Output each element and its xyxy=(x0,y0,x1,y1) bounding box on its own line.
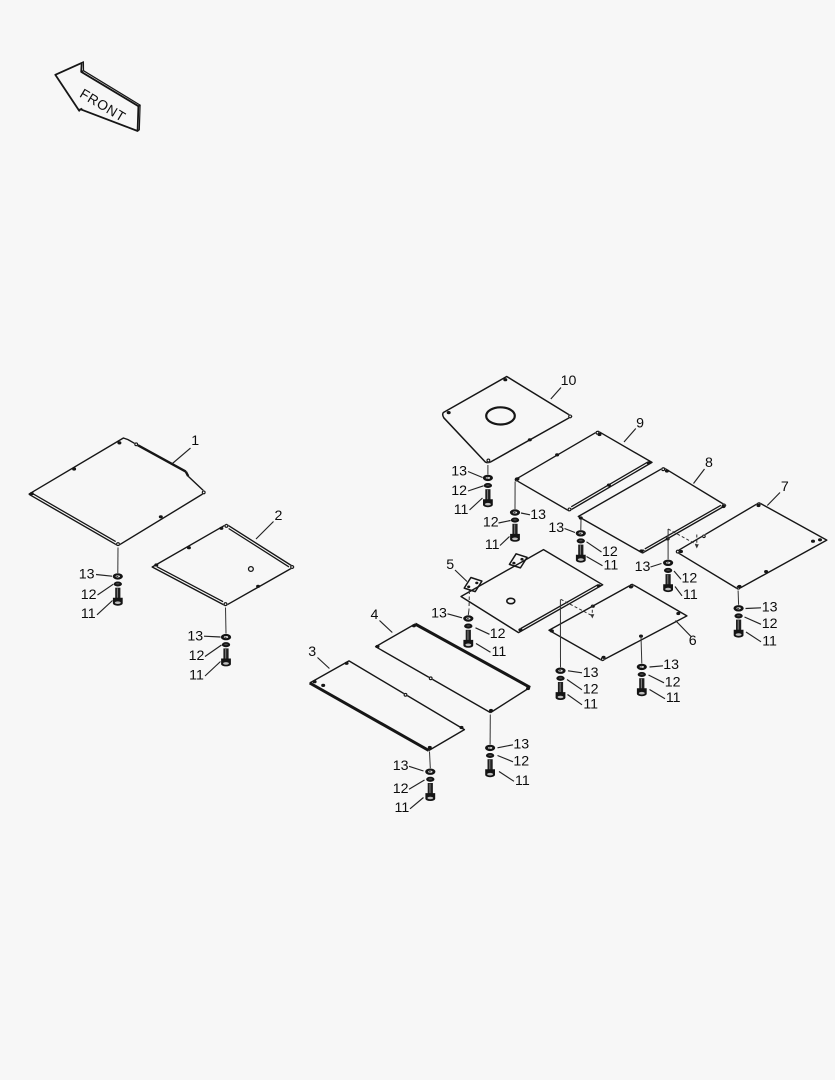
svg-text:11: 11 xyxy=(515,773,530,789)
svg-text:11: 11 xyxy=(189,667,204,683)
svg-text:13: 13 xyxy=(187,628,203,644)
svg-text:1: 1 xyxy=(191,433,199,449)
svg-text:12: 12 xyxy=(665,674,681,690)
svg-text:2: 2 xyxy=(274,508,282,524)
svg-text:3: 3 xyxy=(308,644,316,660)
svg-text:13: 13 xyxy=(635,559,651,575)
svg-text:13: 13 xyxy=(451,464,467,480)
svg-text:7: 7 xyxy=(781,479,789,495)
svg-text:13: 13 xyxy=(393,758,409,774)
svg-text:13: 13 xyxy=(583,665,599,681)
svg-text:9: 9 xyxy=(636,416,644,432)
svg-text:12: 12 xyxy=(189,648,205,664)
svg-text:12: 12 xyxy=(451,483,467,499)
svg-text:12: 12 xyxy=(81,587,97,603)
svg-text:13: 13 xyxy=(79,567,95,583)
svg-text:13: 13 xyxy=(663,657,679,673)
svg-text:11: 11 xyxy=(454,502,469,518)
svg-text:13: 13 xyxy=(762,599,778,615)
svg-text:10: 10 xyxy=(561,373,577,389)
svg-text:11: 11 xyxy=(485,537,500,553)
svg-text:13: 13 xyxy=(513,736,529,752)
svg-text:11: 11 xyxy=(683,587,698,603)
svg-text:11: 11 xyxy=(492,644,507,660)
svg-text:11: 11 xyxy=(762,633,777,649)
svg-text:4: 4 xyxy=(370,607,378,623)
svg-text:11: 11 xyxy=(81,606,96,622)
svg-text:12: 12 xyxy=(393,781,409,797)
svg-text:12: 12 xyxy=(483,515,499,531)
svg-text:11: 11 xyxy=(583,696,598,712)
svg-text:5: 5 xyxy=(446,557,454,573)
svg-text:11: 11 xyxy=(395,800,410,816)
svg-text:12: 12 xyxy=(762,616,778,632)
svg-text:12: 12 xyxy=(490,626,506,642)
svg-text:8: 8 xyxy=(705,455,713,471)
svg-text:11: 11 xyxy=(604,557,619,573)
svg-text:13: 13 xyxy=(431,606,447,622)
svg-text:13: 13 xyxy=(530,507,546,523)
svg-text:13: 13 xyxy=(548,520,564,536)
svg-text:12: 12 xyxy=(583,681,599,697)
svg-text:12: 12 xyxy=(682,571,698,587)
svg-text:11: 11 xyxy=(666,690,681,706)
svg-text:12: 12 xyxy=(513,754,529,770)
